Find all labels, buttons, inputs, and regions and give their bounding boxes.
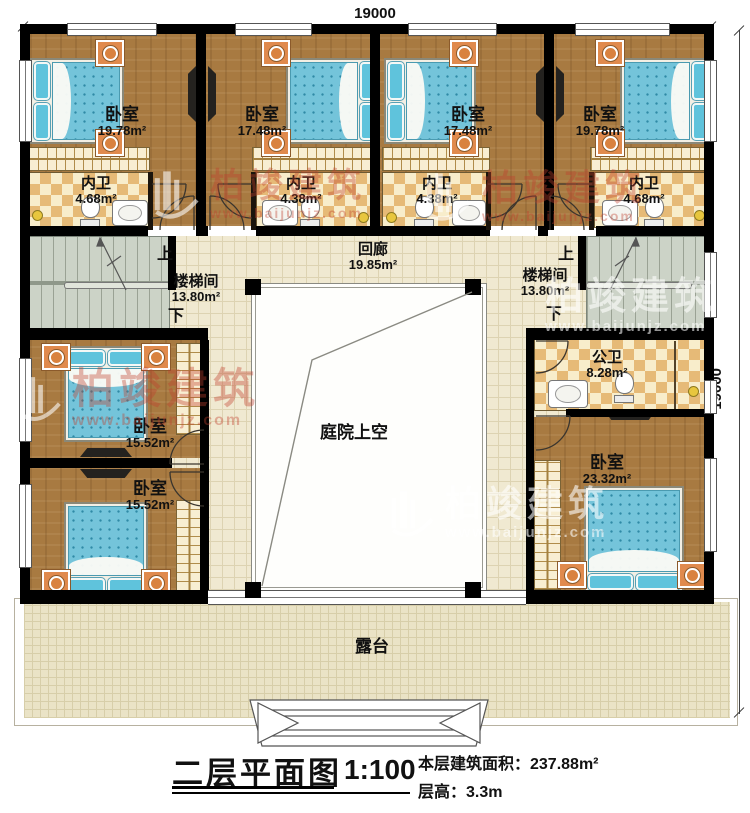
wall [200,340,209,590]
mattress [68,506,144,576]
room-label-courtyard: 庭院上空 [320,424,388,442]
stair-down-label: 下 [168,302,184,326]
wall [20,328,208,340]
room-label-bath-3: 内卫 4.38m² [416,176,457,205]
pillow [68,350,105,366]
stair-handrail [64,282,170,289]
pillow [388,103,404,141]
column-post [465,582,481,598]
wall [526,328,714,340]
room-label-bedroom-bl: 卧室 15.52m² [126,480,174,511]
plant-pot [603,46,618,61]
pillows [388,62,404,140]
wall-lamp [688,386,699,397]
title-underline [172,792,410,794]
drawing-scale: 1:100 [344,754,416,786]
tv [80,448,132,457]
nightstand [678,562,706,588]
window [67,23,157,36]
pillows [68,350,144,366]
pillow [636,574,681,590]
window [235,23,312,36]
wall [20,590,208,604]
plant-pot [269,46,284,61]
closet [176,343,203,435]
stair-down-label: 下 [546,300,562,324]
room-label-public-bath: 公卫 8.28m² [586,350,627,379]
plant-pot [149,350,164,365]
closet [28,147,150,171]
closet [534,460,561,590]
window [704,380,717,414]
wall [578,236,586,290]
column-post [245,279,261,295]
pillow [34,103,50,141]
window [408,23,497,36]
nightstand [262,40,290,66]
pillow [388,62,404,100]
wall [251,172,256,230]
tv [80,469,132,478]
title-underline [172,786,334,789]
bed [64,502,148,598]
nightstand [450,40,478,66]
room-label-bedroom-tmr: 卧室 17.48m² [444,106,492,137]
column-post [245,582,261,598]
window [19,358,32,442]
pillows [34,62,50,140]
plant-pot [565,568,580,583]
window [19,484,32,568]
stair-handrail [586,282,692,289]
wall [196,24,206,230]
plant-pot [49,576,64,591]
nightstand [558,562,586,588]
window [19,60,32,142]
room-label-bath-1: 内卫 4.68m² [75,176,116,205]
wall [20,458,172,468]
stair-up-label: 上 [157,240,173,264]
wall [148,172,153,230]
wall [370,24,380,230]
room-label-bedroom-tl: 卧室 19.78m² [98,106,146,137]
room-label-corridor: 回廊 19.85m² [349,242,397,271]
tv [208,66,216,122]
bed [584,486,684,594]
nightstand [96,40,124,66]
storey-height-text: 层高：3.3m [418,778,502,802]
sink-basin [118,205,141,221]
wall [544,24,554,230]
stair-up-label: 上 [558,240,574,264]
wall [589,172,594,230]
nightstand [42,344,70,370]
bed [620,58,712,144]
sink-basin [268,205,291,221]
window [704,458,717,552]
room-label-bedroom-tr: 卧室 19.78m² [576,106,624,137]
mattress [624,62,690,140]
pillow [108,350,145,366]
toilet-tank [614,395,634,403]
window [704,60,717,142]
window [704,252,717,318]
tv [536,66,544,122]
wall [196,226,208,236]
nightstand [596,40,624,66]
plant-pot [685,568,700,583]
nightstand [142,344,170,370]
wall [20,226,148,236]
pillow [34,62,50,100]
wall-lamp [358,212,369,223]
shower-partition [674,341,676,409]
wall [566,409,708,417]
room-label-bedroom-br: 卧室 23.32m² [583,454,631,485]
wall [538,226,548,236]
tv [556,66,564,122]
mattress [290,62,358,140]
plant-pot [49,350,64,365]
wall [526,340,534,590]
wall [596,226,714,236]
pillows [588,574,680,590]
plant-pot [457,46,472,61]
column-post [465,279,481,295]
sink-basin [458,205,480,221]
dimension-line-right [739,30,740,714]
wall-lamp [386,212,397,223]
window [575,23,670,36]
wall [256,226,490,236]
floor-plan-canvas: 19000 19000 露台 [0,0,750,813]
pillow [588,574,633,590]
room-label-bedroom-tml: 卧室 17.48m² [238,106,286,137]
dimension-label-top: 19000 [350,5,400,22]
wall-lamp [32,210,43,221]
sink-basin [608,205,631,221]
mattress [588,490,680,572]
tv [188,66,196,122]
plant-pot [149,576,164,591]
room-label-bath-2: 内卫 4.38m² [280,176,321,205]
room-label-terrace: 露台 [355,638,389,656]
closet [176,500,203,592]
room-label-bath-4: 内卫 4.68m² [623,176,664,205]
terrace-floor [24,602,730,718]
wall [486,172,491,230]
room-label-bedroom-ml: 卧室 15.52m² [126,418,174,449]
bed [286,58,380,144]
sink [112,200,148,226]
room-label-stair-left: 楼梯间 13.80m² [172,274,220,303]
wall [526,590,714,604]
sink-basin [555,385,581,403]
building-area-text: 本层建筑面积：237.88m² [418,750,599,774]
plant-pot [103,46,118,61]
room-label-stair-right: 楼梯间 13.80m² [521,268,569,297]
sink [548,380,588,408]
